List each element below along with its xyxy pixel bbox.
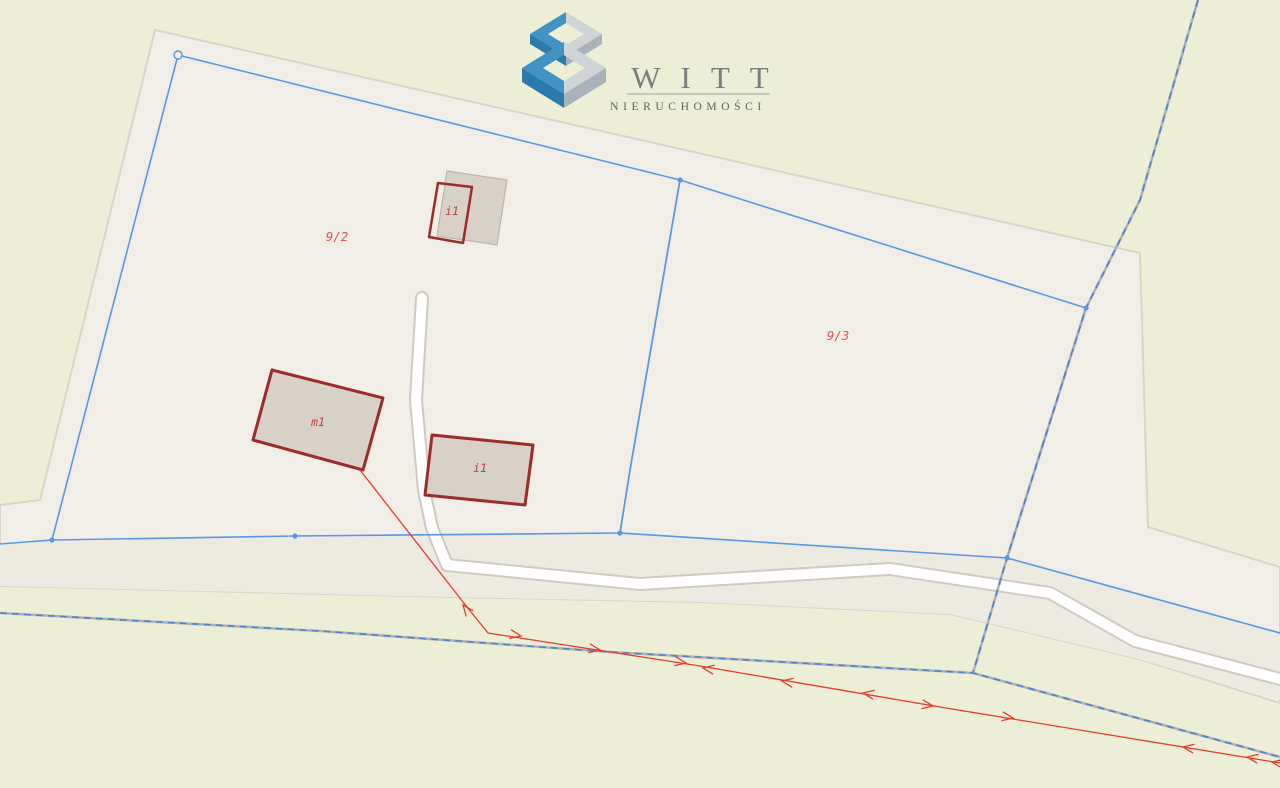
- boundary-vertex: [677, 177, 682, 182]
- building-label-m1: m1: [310, 415, 325, 429]
- boundary-vertex: [1083, 305, 1088, 310]
- witt-logo: WITT NIERUCHOMOŚCI: [522, 12, 789, 113]
- logo-title: WITT: [631, 60, 788, 95]
- boundary-vertex: [292, 533, 297, 538]
- logo-subtitle: NIERUCHOMOŚCI: [610, 99, 766, 113]
- building-label-i1-top: i1: [445, 204, 459, 218]
- building-label-i1-mid: i1: [473, 461, 487, 475]
- witt-logo-cube-icon: [522, 12, 606, 108]
- boundary-vertex: [49, 537, 54, 542]
- cadastral-map: 9/2 9/3 i1 m1 i1 WITT NIERUCHOMOŚCI: [0, 0, 1280, 788]
- flow-arrow-icon: [702, 664, 714, 675]
- boundary-vertex: [1004, 555, 1009, 560]
- flow-arrow-icon: [459, 602, 473, 616]
- map-stage: 9/2 9/3 i1 m1 i1 WITT NIERUCHOMOŚCI: [0, 0, 1280, 788]
- boundary-vertex: [174, 51, 182, 59]
- parcel-label-9-3: 9/3: [827, 328, 850, 343]
- boundary-vertex: [617, 530, 622, 535]
- flow-arrow-icon: [862, 689, 874, 700]
- flow-arrow-icon: [509, 630, 521, 641]
- parcel-label-9-2: 9/2: [326, 229, 349, 244]
